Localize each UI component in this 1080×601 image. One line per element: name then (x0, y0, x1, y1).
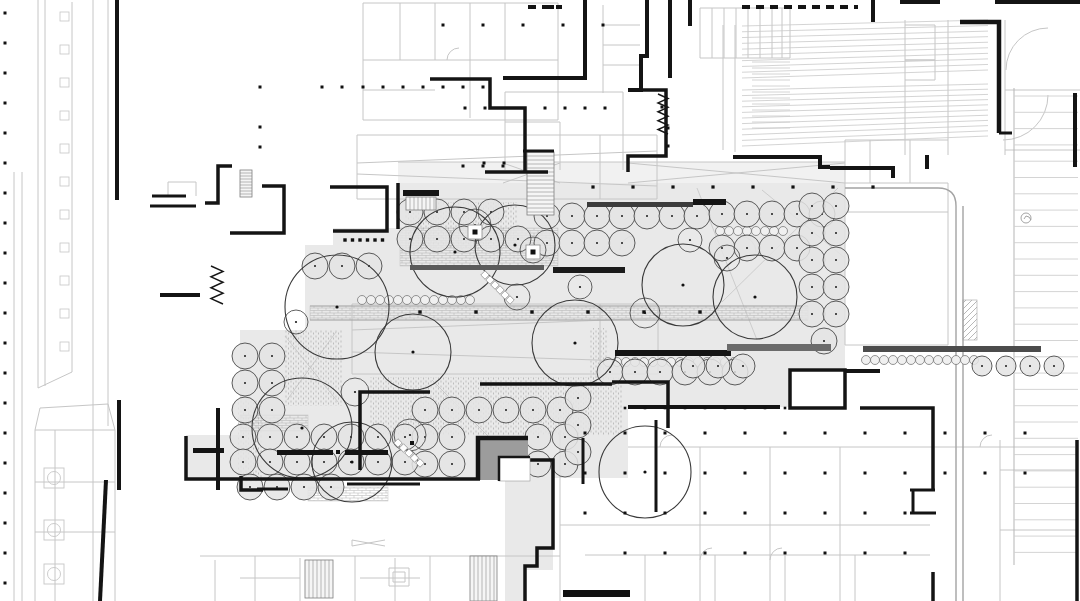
roof-hatch-square (478, 438, 530, 481)
site-plan-canvas (0, 0, 1080, 601)
site-plan-drawing (0, 0, 1080, 601)
